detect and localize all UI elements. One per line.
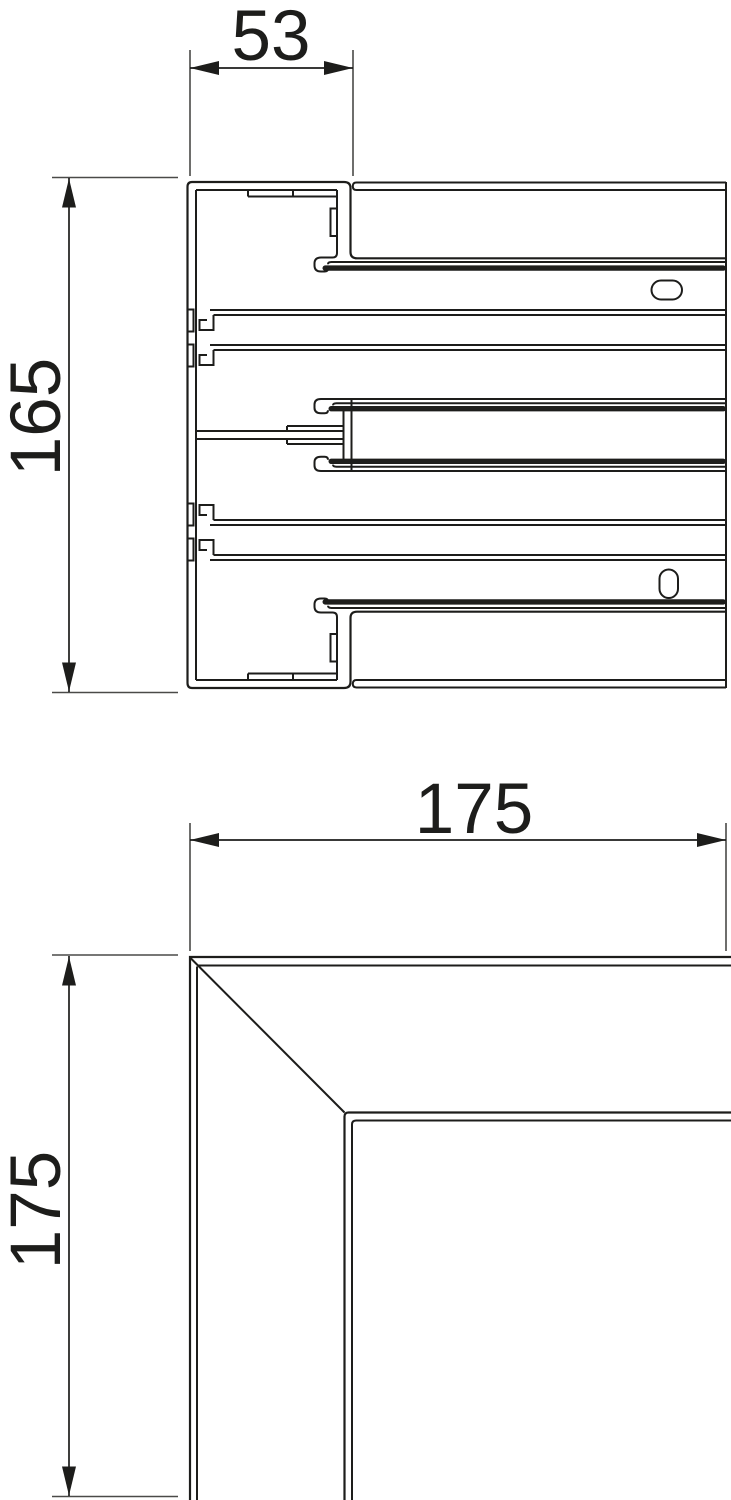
cross-section-view: 53 165 (0, 0, 726, 693)
oval-hole-top (652, 281, 683, 300)
cover-claw-top (315, 190, 338, 272)
dimension-value-height: 175 (0, 1151, 76, 1269)
separator-rail-1 (210, 310, 726, 315)
lid-panel-top (353, 183, 726, 191)
dimension-value-width: 53 (232, 0, 311, 76)
arrowhead-down-icon (62, 1467, 76, 1496)
wall-notch-1 (189, 310, 194, 332)
dimension-height-175: 175 (0, 955, 178, 1497)
corner-geometry (190, 957, 731, 1500)
arrowhead-right-icon (324, 61, 353, 75)
rail-claw-4 (200, 540, 214, 555)
middle-shelf-top-line2 (333, 403, 726, 405)
rail-claw-1 (200, 315, 214, 330)
wall-notch-4 (189, 539, 194, 561)
corner-inner-edge (345, 1113, 731, 1500)
separator-rail-2 (210, 345, 726, 350)
cover-claw-bottom (315, 599, 338, 681)
arrowhead-left-icon (190, 61, 219, 75)
lid-edge-line-top (328, 262, 726, 264)
profile-geometry (188, 182, 727, 688)
rail-claw-2 (200, 350, 214, 365)
arrowhead-up-icon (62, 957, 76, 986)
seal-band-top (323, 265, 727, 270)
miter-line (191, 958, 345, 1113)
middle-shelf-bottom-band (329, 459, 727, 464)
arrowhead-left-icon (190, 833, 219, 847)
wall-notch-3 (189, 504, 194, 526)
corner-inner-edge-line2 (352, 1121, 731, 1500)
dimension-height-165: 165 (0, 178, 178, 693)
middle-shelf-top-band (329, 406, 727, 411)
cover-wall-bottom (344, 612, 726, 688)
wall-notch-2 (189, 345, 194, 367)
corner-view: 175 175 (0, 770, 731, 1500)
cover-wall-top (344, 182, 726, 258)
arrowhead-up-icon (62, 179, 76, 208)
dimension-value-height: 165 (0, 358, 76, 476)
arrowhead-right-icon (697, 833, 726, 847)
oval-hole-bottom (660, 570, 679, 599)
arrowhead-down-icon (62, 663, 76, 692)
lid-panel-bottom (353, 680, 726, 688)
rail-claw-3 (200, 505, 214, 520)
separator-rail-3 (210, 520, 726, 525)
dimension-width-175: 175 (190, 770, 726, 951)
divider-tab (196, 426, 344, 444)
separator-rail-4 (210, 555, 726, 560)
seal-band-bottom (323, 599, 727, 604)
technical-drawing-page: 53 165 (0, 0, 731, 1500)
dimension-value-width: 175 (415, 770, 533, 849)
lid-edge-line-bottom (328, 606, 726, 608)
middle-shelf-bottom-line2 (333, 465, 726, 467)
dimension-width-53: 53 (190, 0, 353, 176)
technical-drawing: 53 165 (0, 0, 731, 1500)
